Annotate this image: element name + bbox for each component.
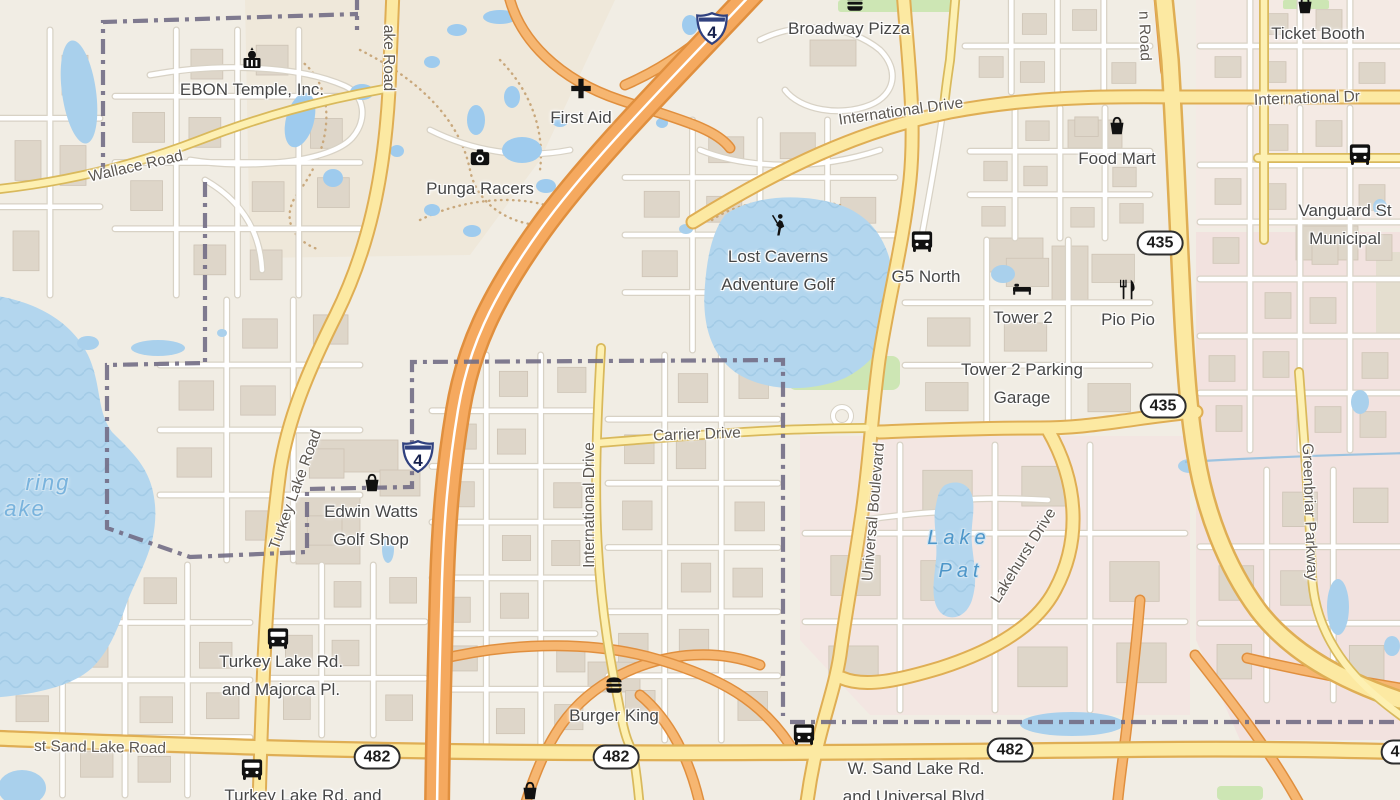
map-label-layer: EBON Temple, Inc.First AidPunga RacersBr…: [0, 0, 1400, 800]
route-shield: 482: [987, 738, 1034, 763]
road-name-label: International Drive: [576, 442, 604, 568]
poi-label: Tower 2 ParkingGarage: [961, 356, 1083, 412]
road-name-label: st Sand Lake Road: [34, 733, 166, 763]
map-poi-icon: [909, 228, 936, 260]
map-poi-icon: [568, 76, 594, 107]
bus-icon: [239, 756, 266, 783]
water-name-label: ring: [26, 469, 71, 497]
poi-label: Edwin WattsGolf Shop: [324, 498, 418, 554]
route-shield: 482: [1381, 740, 1400, 765]
road-name-label: International Drive: [837, 89, 965, 134]
map-canvas[interactable]: EBON Temple, Inc.First AidPunga RacersBr…: [0, 0, 1400, 800]
poi-label: EBON Temple, Inc.: [180, 76, 324, 104]
golfer-icon: [763, 212, 791, 240]
route-shield: 435: [1140, 394, 1187, 419]
road-name-label: International Dr: [1254, 83, 1361, 115]
map-poi-icon: [237, 45, 267, 80]
camera-icon: [467, 145, 493, 171]
poi-label: Punga Racers: [426, 175, 534, 203]
poi-label: Tower 2: [993, 304, 1053, 332]
poi-label: Ticket Booth: [1271, 20, 1365, 48]
map-poi-icon: [239, 756, 266, 788]
firstaid-icon: [568, 76, 594, 102]
road-name-label: ake Road: [374, 25, 402, 91]
route-shield: 482: [354, 745, 401, 770]
interstate-shield-icon: 4: [696, 12, 728, 46]
poi-label: Pio Pio: [1101, 306, 1155, 334]
map-poi-icon: [1104, 114, 1130, 145]
poi-label: Vanguard StMunicipal: [1298, 197, 1391, 253]
map-poi-icon: [1292, 0, 1318, 24]
basket-icon: [359, 471, 385, 497]
interstate-shield-icon: 4: [402, 440, 434, 474]
poi-label: Food Mart: [1078, 145, 1155, 173]
map-poi-icon: [265, 625, 292, 657]
basket-icon: [1104, 114, 1130, 140]
bus-icon: [1347, 141, 1374, 168]
water-name-label: Lake: [927, 524, 990, 552]
poi-label: G5 North: [892, 263, 961, 291]
poi-label: Lost CavernsAdventure Golf: [721, 243, 834, 299]
basket-icon: [1292, 0, 1318, 19]
map-poi-icon: [842, 0, 868, 22]
water-name-label: Pat: [938, 557, 983, 585]
burger-icon: [842, 0, 868, 17]
map-poi-icon: [791, 721, 818, 753]
water-name-label: ake: [4, 495, 45, 523]
map-poi-icon: [359, 471, 385, 502]
route-shield: 435: [1137, 231, 1184, 256]
poi-label: Burger King: [569, 702, 659, 730]
restaurant-icon: [1115, 277, 1141, 303]
burger-icon: [601, 673, 627, 699]
map-poi-icon: [517, 779, 543, 800]
bed-icon: [1010, 276, 1034, 300]
map-poi-icon: [467, 145, 493, 176]
interstate-shield: 4: [696, 12, 728, 51]
road-name-label: Carrier Drive: [653, 419, 742, 450]
map-poi-icon: [763, 212, 791, 245]
poi-label: First Aid: [550, 104, 611, 132]
bus-icon: [791, 721, 818, 748]
road-name-label: Wallace Road: [86, 143, 186, 192]
bus-icon: [265, 625, 292, 652]
basket-icon: [517, 779, 543, 800]
map-poi-icon: [1347, 141, 1374, 173]
road-name-label: Universal Boulevard: [854, 442, 894, 583]
bus-icon: [909, 228, 936, 255]
road-name-label: Lakehurst Drive: [983, 503, 1064, 610]
route-shield: 482: [593, 745, 640, 770]
map-poi-icon: [1010, 276, 1034, 305]
road-name-label: n Road: [1129, 11, 1159, 62]
road-name-label: Turkey Lake Road: [261, 426, 330, 554]
road-name-label: Greenbriar Parkway: [1293, 443, 1326, 582]
svg-text:4: 4: [413, 451, 423, 470]
svg-text:4: 4: [707, 23, 717, 42]
map-poi-icon: [601, 673, 627, 704]
map-poi-icon: [1115, 277, 1141, 308]
temple-icon: [237, 45, 267, 75]
interstate-shield: 4: [402, 440, 434, 479]
poi-label: W. Sand Lake Rd.and Universal Blvd.: [843, 755, 989, 800]
